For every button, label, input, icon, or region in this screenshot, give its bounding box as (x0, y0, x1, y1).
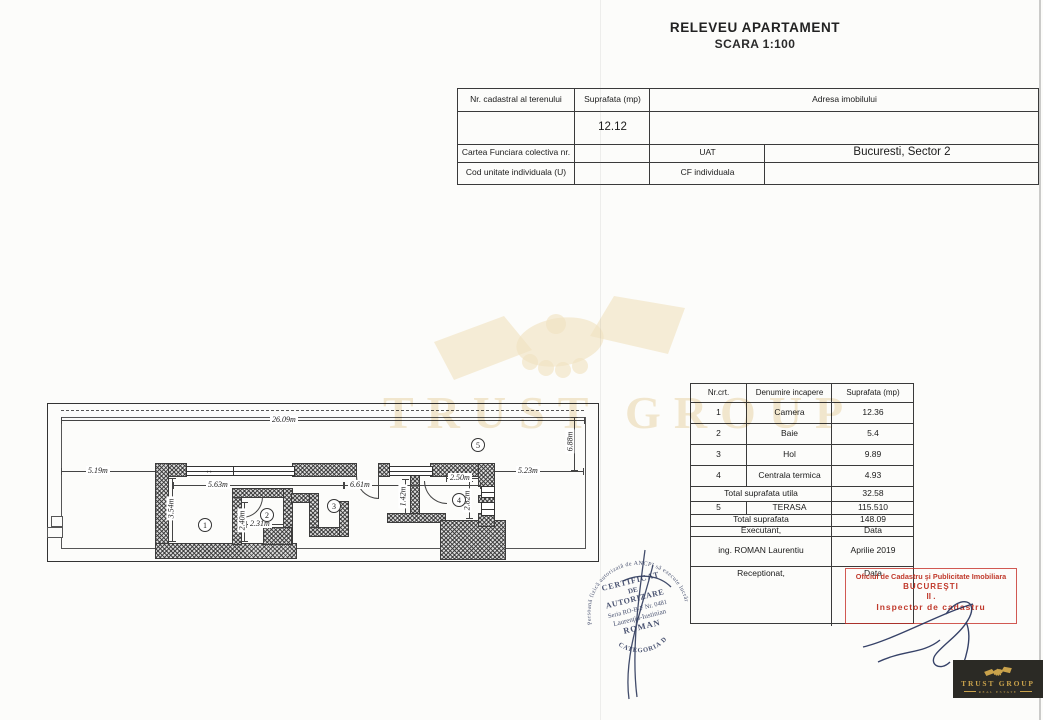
cadastral-table-cell: Suprafata (mp) (574, 89, 650, 112)
table-cell: ing. ROMAN Laurentiu (691, 536, 831, 567)
handshake-icon (981, 665, 1015, 678)
table-header: Denumire incapere (746, 384, 832, 403)
cadastral-table-cell (458, 111, 574, 145)
title-line-2: SCARA 1:100 (560, 37, 950, 51)
logo-subtitle: REAL ESTATE (964, 690, 1033, 694)
dimension-label: 5.19m (86, 466, 110, 475)
wall-segment (479, 464, 494, 486)
wall-segment (411, 476, 419, 516)
floor-plan: 26.09m 6.88m 5.19m 5.23m ↔ 5.63m 6.61m 2… (47, 403, 599, 562)
terrace-notch (51, 516, 63, 527)
dimension-line (61, 420, 585, 421)
cadastral-table-cell: Bucuresti, Sector 2 (764, 144, 1039, 163)
table-cell: Camera (746, 402, 832, 424)
roof-overhang-dashed-line (61, 410, 584, 411)
window-symbol (481, 486, 495, 498)
room-number: 1 (198, 518, 212, 532)
dimension-label: 26.09m (270, 415, 298, 424)
table-cell: 115.510 (831, 501, 914, 515)
dimension-line (173, 485, 344, 486)
dimension-label: 6.61m (348, 480, 372, 489)
room-number: 3 (327, 499, 341, 513)
document-title: RELEVEU APARTAMENT SCARA 1:100 (560, 20, 950, 51)
logo-subtitle-text: REAL ESTATE (979, 690, 1018, 694)
table-cell: Centrala termica (746, 465, 832, 487)
table-cell: Receptionat, (691, 566, 831, 626)
cadastral-table-cell (574, 162, 650, 184)
trust-group-logo: TRUST GROUP REAL ESTATE (953, 660, 1043, 698)
room-number: 2 (260, 508, 274, 522)
red-stamp-line: Oficiul de Cadastru şi Publicitate Imobi… (846, 572, 1016, 581)
cadastral-table-cell: Cod unitate individuala (U) (458, 162, 574, 184)
table-cell: Aprilie 2019 (831, 536, 914, 567)
double-arrow-icon: ↔ (193, 466, 225, 474)
window-symbol (481, 502, 495, 516)
logo-divider (1020, 691, 1032, 692)
dimension-label: 3.54m (166, 497, 175, 521)
table-cell: TERASA (746, 501, 832, 515)
table-cell: 4 (691, 465, 746, 487)
table-cell: Hol (746, 444, 832, 466)
dimension-label: 5.63m (206, 480, 230, 489)
title-line-1: RELEVEU APARTAMENT (560, 20, 950, 35)
table-cell: 3 (691, 444, 746, 466)
cadastral-table-cell: Cartea Funciara colectiva nr. (458, 144, 574, 163)
handshake-watermark-icon (432, 280, 687, 398)
table-cell: 5.4 (831, 423, 914, 445)
cadastral-table: Nr. cadastral al terenului Suprafata (mp… (457, 88, 1039, 185)
terrace-notch (47, 527, 63, 538)
cadastral-table-cell: Nr. cadastral al terenului (458, 89, 574, 112)
table-cell: 12.36 (831, 402, 914, 424)
wall-segment (388, 514, 445, 522)
red-stamp-line: BUCUREŞTI (846, 582, 1016, 591)
dimension-label: 2.50m (448, 473, 472, 482)
door-leaf (378, 476, 379, 498)
cadastral-table-cell: Adresa imobilului (649, 89, 1039, 112)
table-header: Suprafata (mp) (831, 384, 914, 403)
table-cell: 9.89 (831, 444, 914, 466)
table-cell: Total suprafata utila (691, 486, 831, 502)
window-symbol (233, 466, 295, 476)
window-symbol (389, 466, 433, 476)
cadastral-table-cell (574, 144, 650, 163)
dimension-label: 1.42m (398, 485, 407, 509)
table-cell: 1 (691, 402, 746, 424)
wall-segment (293, 464, 356, 476)
logo-title: TRUST GROUP (961, 679, 1035, 688)
table-cell: 4.93 (831, 465, 914, 487)
cadastral-table-cell (764, 162, 1039, 184)
wall-segment (156, 544, 296, 558)
table-cell: Baie (746, 423, 832, 445)
logo-divider (964, 691, 976, 692)
certificate-stamp: Persoană fizică autorizată de ANCPI să e… (565, 545, 710, 720)
table-header: Nr.crt. (691, 384, 746, 403)
table-cell: 5 (691, 501, 746, 515)
room-number: 5 (471, 438, 485, 452)
cadastral-table-cell: UAT (649, 144, 765, 163)
table-cell: 2 (691, 423, 746, 445)
cadastral-table-cell: 12.12 (574, 111, 650, 145)
wall-segment (379, 464, 389, 476)
scan-edge-line (1039, 0, 1041, 720)
wall-segment (340, 502, 348, 536)
cadastral-table-cell (649, 111, 1039, 145)
table-cell: 32.58 (831, 486, 914, 502)
dimension-label: 2.40m (237, 509, 246, 533)
dimension-label: 5.23m (516, 466, 540, 475)
wall-segment (441, 521, 505, 559)
wall-segment (264, 528, 291, 544)
cadastral-table-cell: CF individuala (649, 162, 765, 184)
room-number: 4 (452, 493, 466, 507)
dimension-label: 6.88m (565, 430, 574, 454)
